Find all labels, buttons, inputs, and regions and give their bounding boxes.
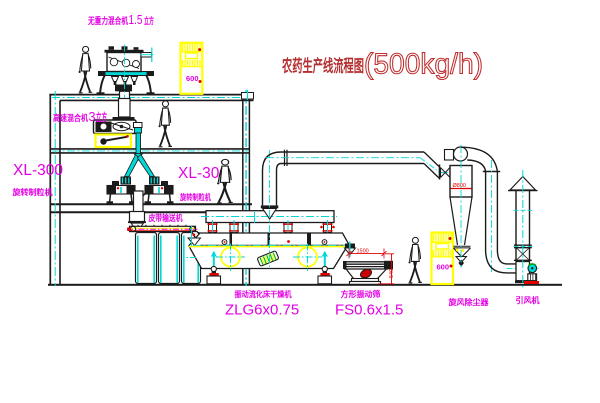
svg-text:皮带输送机: 皮带输送机 (148, 213, 183, 223)
svg-text:振动流化床干燥机: 振动流化床干燥机 (235, 289, 292, 299)
svg-text:540: 540 (389, 269, 395, 278)
svg-text:1.5: 1.5 (129, 12, 143, 27)
svg-text:3: 3 (89, 110, 96, 124)
svg-text:600: 600 (186, 74, 199, 83)
svg-text:1500: 1500 (357, 248, 369, 254)
svg-text:600: 600 (437, 263, 450, 272)
svg-text:高速混合机: 高速混合机 (53, 113, 88, 123)
svg-text:旋风除尘器: 旋风除尘器 (448, 297, 490, 307)
svg-text:XL-300: XL-300 (13, 162, 63, 179)
svg-text:农药生产线流程图: 农药生产线流程图 (281, 56, 364, 76)
svg-text:ZLG6x0.75: ZLG6x0.75 (225, 302, 299, 319)
svg-text:立方: 立方 (96, 110, 107, 124)
svg-text:立方: 立方 (144, 15, 154, 26)
svg-text:引风机: 引风机 (516, 295, 540, 305)
svg-text:FS0.6x1.5: FS0.6x1.5 (335, 302, 403, 319)
svg-text:旋转制粒机: 旋转制粒机 (12, 187, 53, 197)
svg-text:(500kg/h): (500kg/h) (364, 49, 483, 81)
svg-text:旋转制粒机: 旋转制粒机 (179, 192, 211, 202)
svg-text:无重力混合机: 无重力混合机 (87, 15, 128, 26)
svg-text:方形振动筛: 方形振动筛 (341, 289, 381, 299)
